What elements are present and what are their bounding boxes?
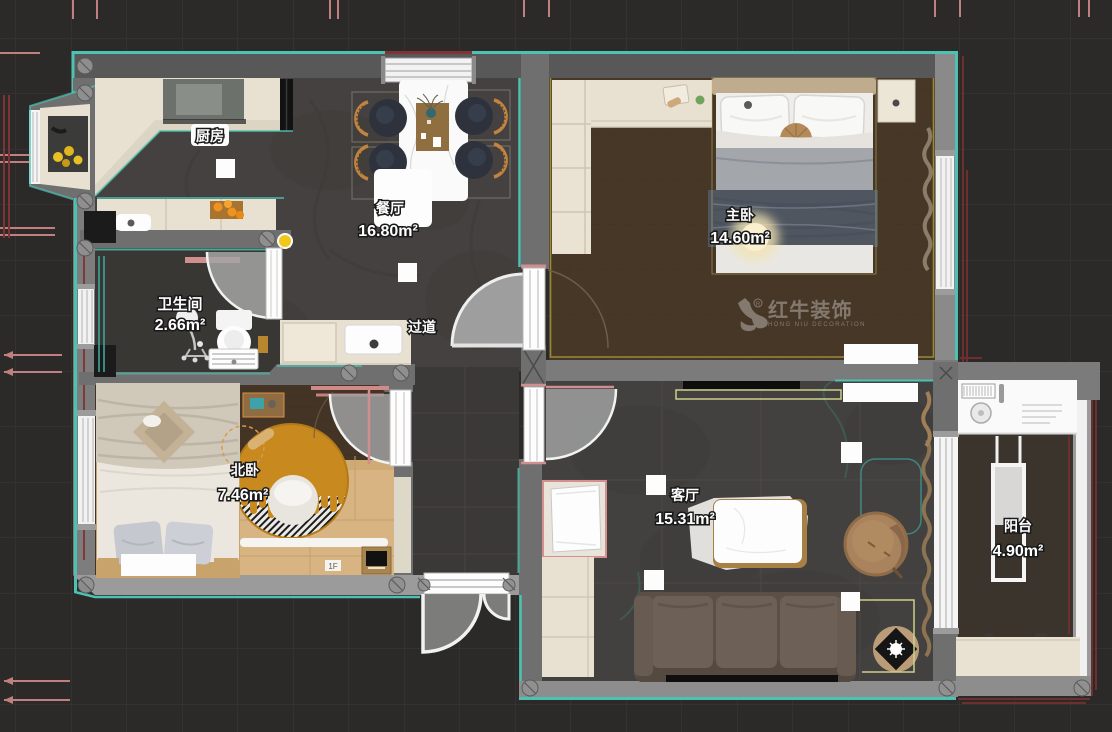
- svg-text:厨房: 厨房: [196, 128, 224, 144]
- svg-text:16.80m²: 16.80m²: [358, 223, 418, 240]
- svg-text:餐厅: 餐厅: [375, 200, 404, 216]
- svg-text:红牛装饰: 红牛装饰: [768, 298, 853, 322]
- svg-text:过道: 过道: [408, 319, 436, 335]
- svg-text:HONG NIU DECORATION: HONG NIU DECORATION: [768, 322, 866, 328]
- svg-text:阳台: 阳台: [1004, 518, 1032, 534]
- svg-text:7.46m²: 7.46m²: [218, 487, 269, 504]
- svg-text:2.66m²: 2.66m²: [155, 317, 206, 334]
- svg-text:北卧: 北卧: [231, 462, 259, 478]
- svg-text:客厅: 客厅: [670, 487, 699, 503]
- svg-text:R: R: [756, 302, 761, 308]
- svg-text:主卧: 主卧: [726, 207, 754, 223]
- svg-text:卫生间: 卫生间: [157, 295, 202, 313]
- svg-text:15.31m²: 15.31m²: [655, 511, 715, 528]
- svg-text:14.60m²: 14.60m²: [710, 230, 770, 247]
- svg-text:1F: 1F: [328, 562, 337, 571]
- svg-text:4.90m²: 4.90m²: [993, 543, 1044, 560]
